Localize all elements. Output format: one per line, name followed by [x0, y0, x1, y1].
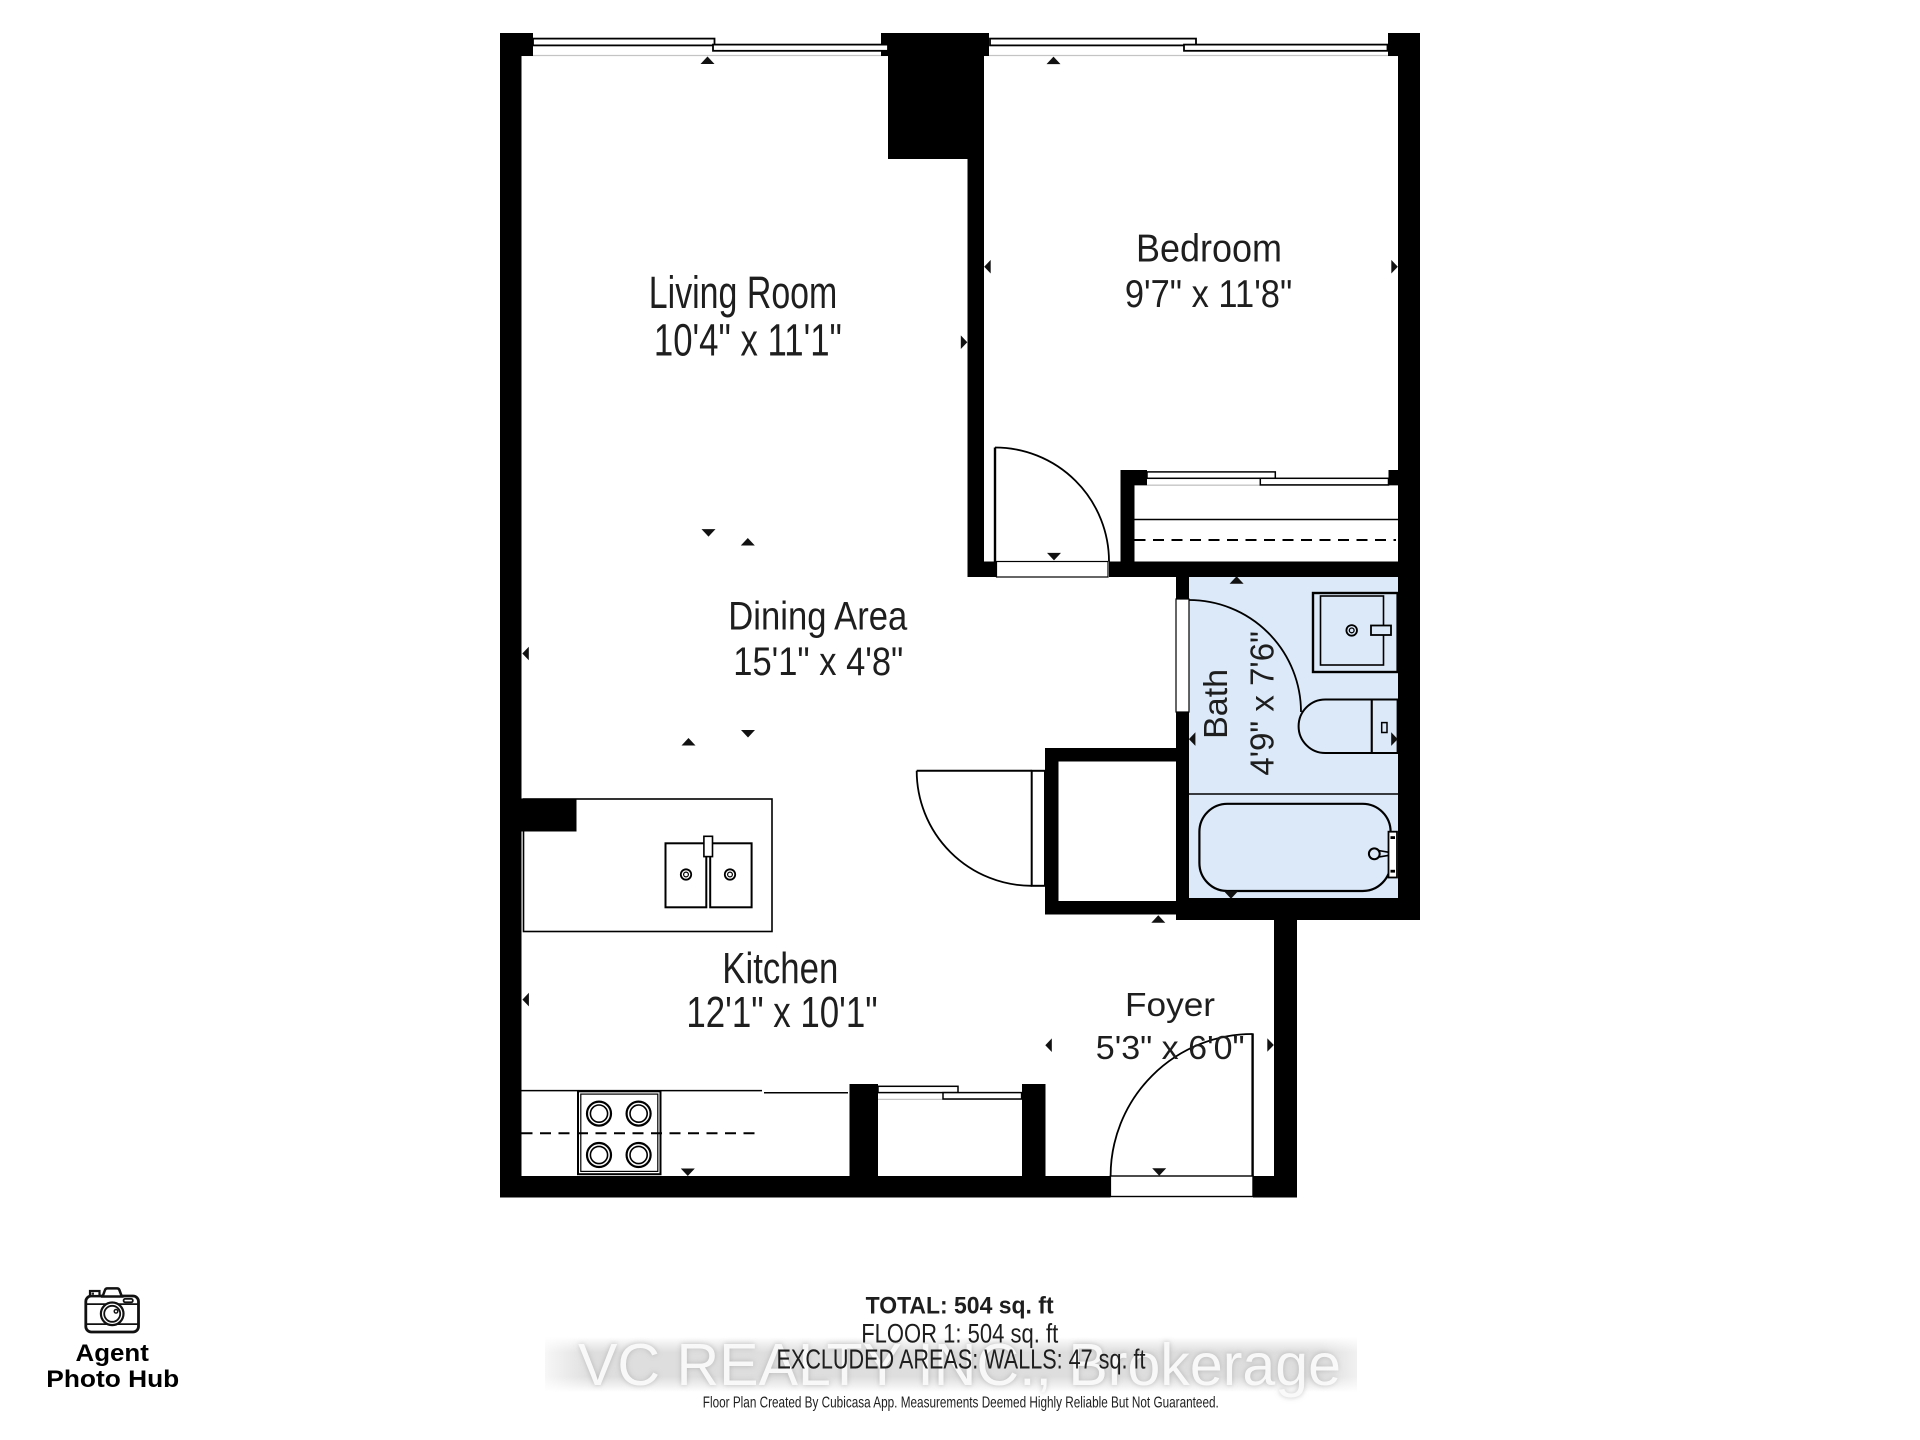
svg-text:Living Room: Living Room: [649, 267, 838, 318]
svg-text:Photo Hub: Photo Hub: [46, 1366, 179, 1393]
svg-text:Agent: Agent: [76, 1340, 149, 1367]
svg-text:9'7" x 11'8": 9'7" x 11'8": [1125, 273, 1292, 316]
svg-text:5'3" x 6'0": 5'3" x 6'0": [1096, 1029, 1245, 1066]
svg-text:15'1" x 4'8": 15'1" x 4'8": [733, 640, 903, 684]
svg-text:Bedroom: Bedroom: [1136, 228, 1282, 271]
svg-text:EXCLUDED AREAS: WALLS: 47 sq.: EXCLUDED AREAS: WALLS: 47 sq. ft: [777, 1344, 1146, 1375]
svg-text:Foyer: Foyer: [1125, 986, 1215, 1023]
svg-text:TOTAL: 504 sq. ft: TOTAL: 504 sq. ft: [866, 1293, 1054, 1320]
svg-text:10'4" x 11'1": 10'4" x 11'1": [654, 315, 842, 366]
svg-text:Dining Area: Dining Area: [728, 594, 907, 638]
svg-text:Bath: Bath: [1198, 669, 1235, 739]
svg-text:Kitchen: Kitchen: [722, 944, 838, 993]
svg-text:Floor Plan Created By Cubicasa: Floor Plan Created By Cubicasa App. Meas…: [703, 1395, 1219, 1412]
svg-text:4'9" x 7'6": 4'9" x 7'6": [1244, 631, 1281, 776]
svg-text:12'1" x 10'1": 12'1" x 10'1": [686, 988, 877, 1037]
